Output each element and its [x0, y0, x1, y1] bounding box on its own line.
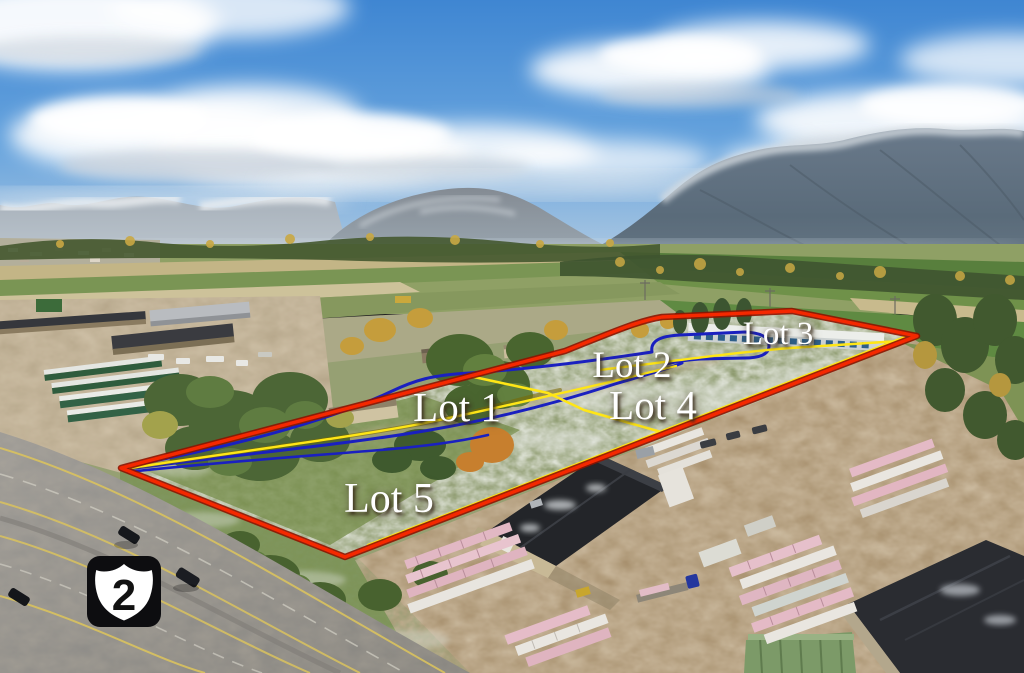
- scene-canvas: ,: [0, 0, 1024, 673]
- lot-label-lot-1: Lot 1: [413, 384, 501, 430]
- route-number: 2: [112, 571, 136, 620]
- green-building: [744, 632, 856, 673]
- lot-label-lot-2: Lot 2: [592, 345, 671, 386]
- aerial-property-photo: ,: [0, 0, 1024, 673]
- lot-label-lot-4: Lot 4: [609, 382, 697, 428]
- route-2-shield: 2: [87, 556, 161, 627]
- lot-label-lot-5: Lot 5: [344, 476, 434, 522]
- lot-label-lot-3: Lot 3: [743, 316, 814, 352]
